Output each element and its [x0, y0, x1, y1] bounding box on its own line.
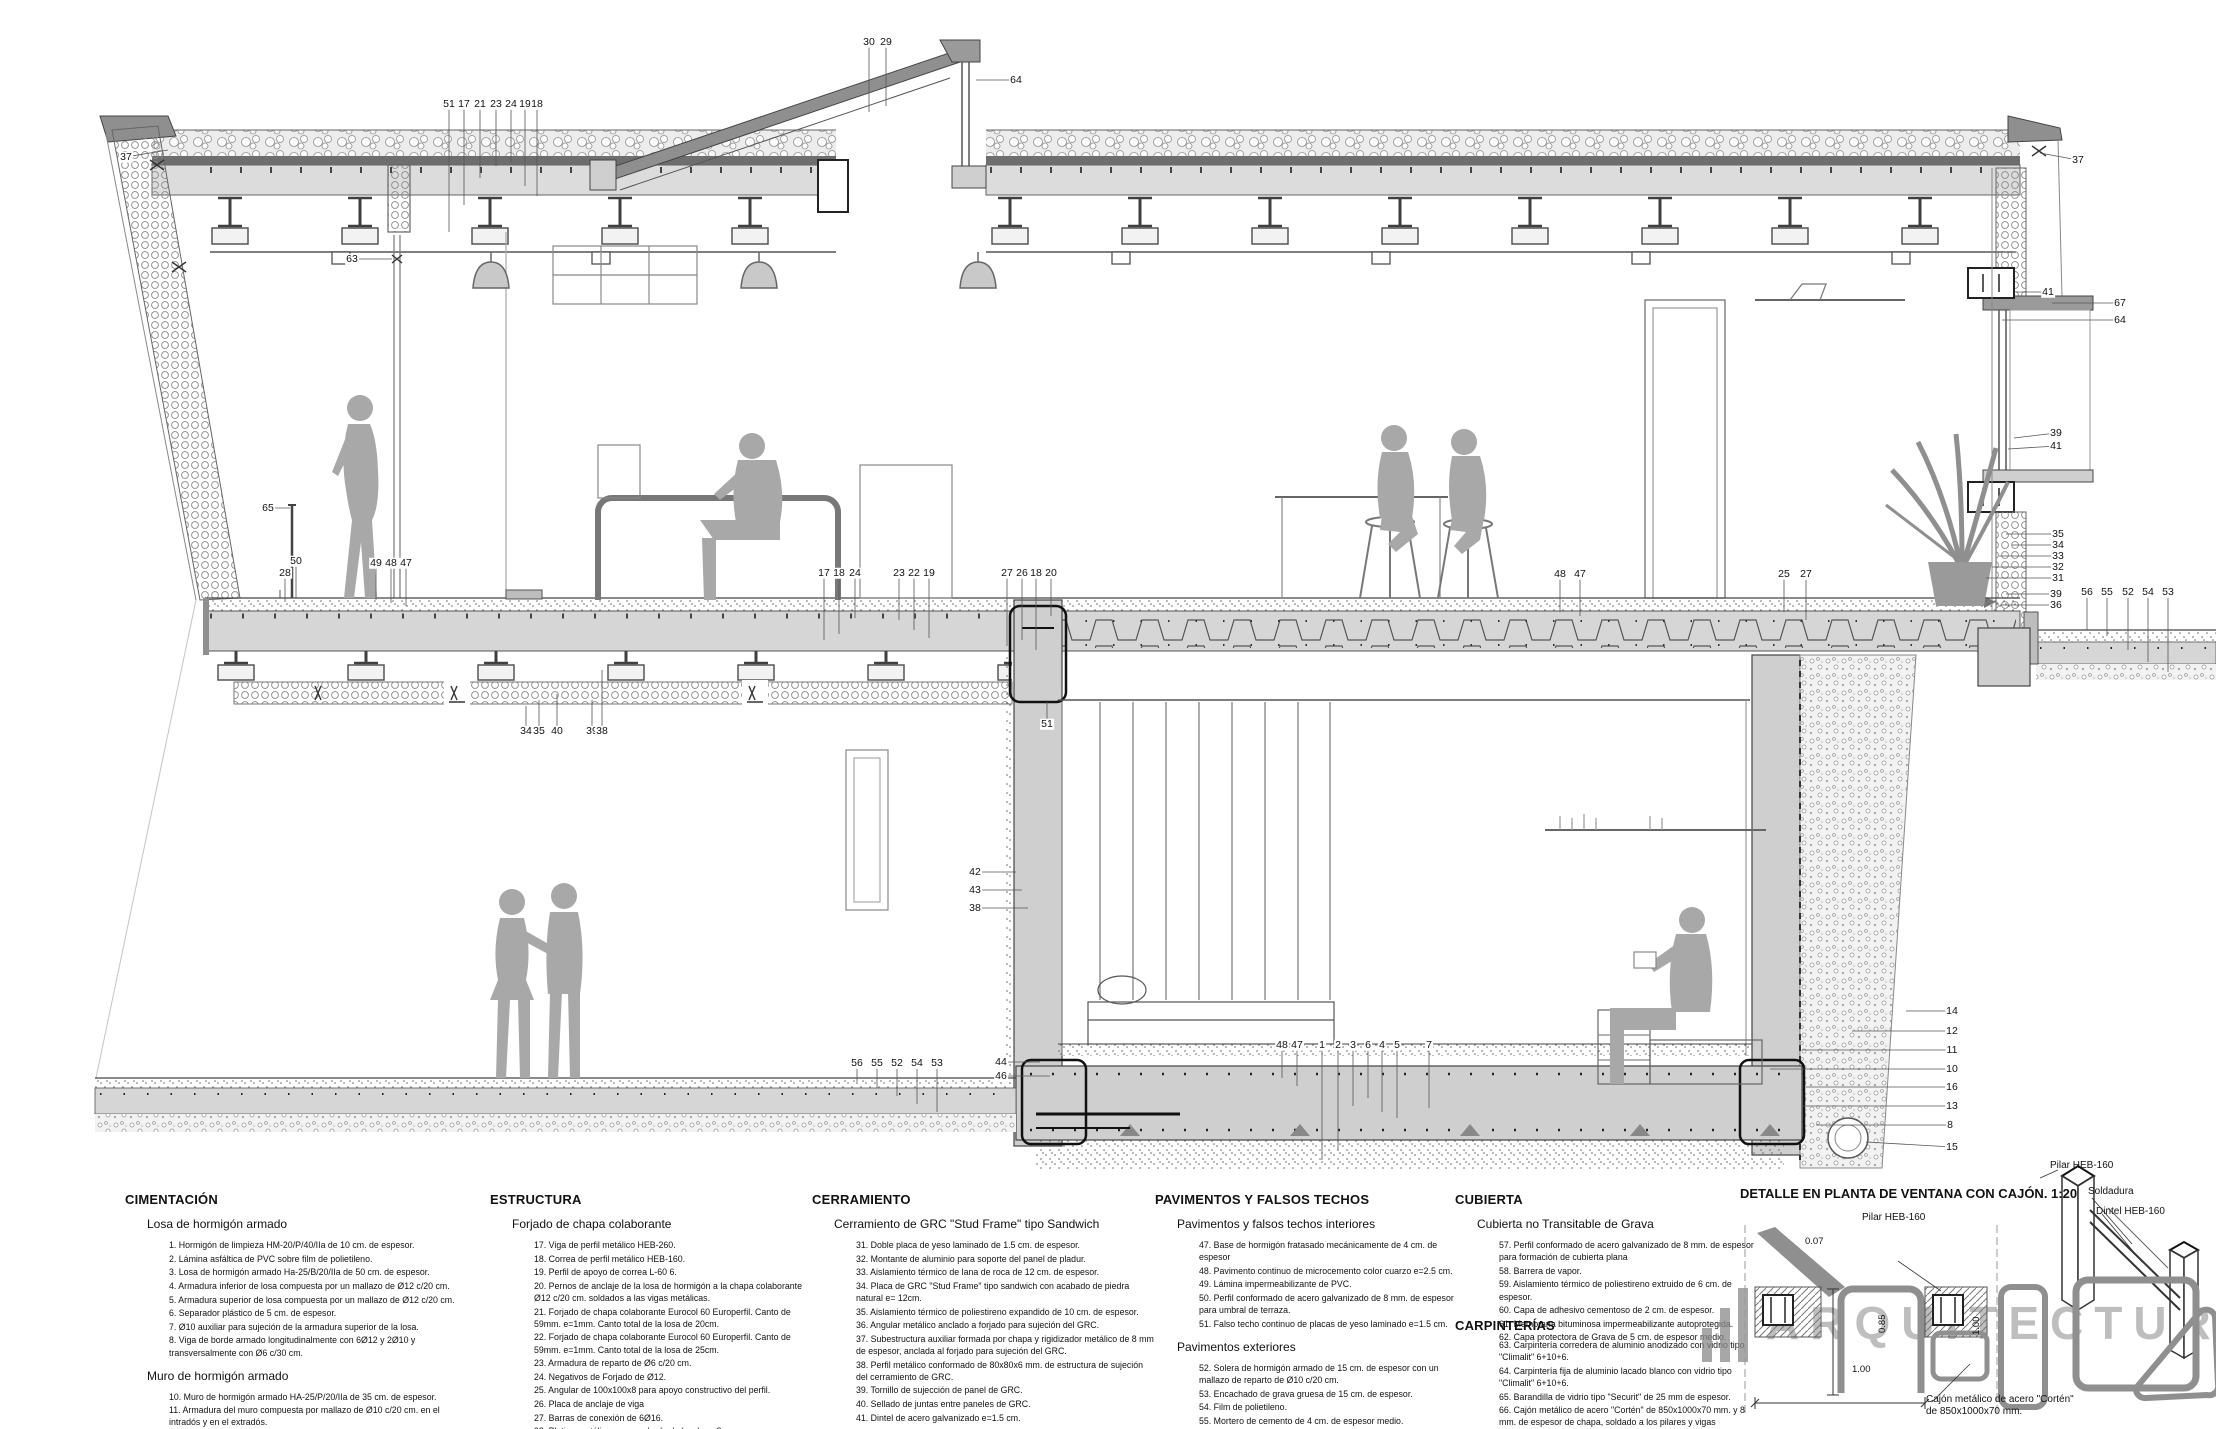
- callout-number: 13: [1945, 1101, 1959, 1112]
- callout-number: 65: [261, 503, 275, 514]
- plan-detail: [1745, 1225, 2045, 1415]
- callout-number: 32: [2051, 562, 2065, 573]
- callout-number: 23: [892, 568, 906, 579]
- callout-number: 48: [1275, 1040, 1289, 1051]
- callout-number: 35: [532, 726, 546, 737]
- legend-subtitle: Losa de hormigón armado: [147, 1217, 470, 1231]
- callout-number: 5: [1393, 1040, 1401, 1051]
- callout-number: 1: [1318, 1040, 1326, 1051]
- legend-item: 34. Placa de GRC "Stud Frame" tipo sandw…: [856, 1280, 1157, 1304]
- callout-number: 17: [817, 568, 831, 579]
- figure-bar-pair: [1377, 425, 1486, 554]
- callout-number: 20: [1044, 568, 1058, 579]
- legend-title: ESTRUCTURA: [490, 1192, 805, 1207]
- callout-number: 47: [1573, 569, 1587, 580]
- axon-detail: [1932, 1166, 2216, 1402]
- callout-number: 11: [1946, 1045, 1959, 1056]
- legend-item: 20. Pernos de anclaje de la losa de horm…: [534, 1280, 805, 1304]
- legend-item: 54. Film de polietileno.: [1199, 1401, 1455, 1413]
- legend-item: 22. Forjado de chapa colaborante Eurocol…: [534, 1331, 805, 1355]
- detail-label-cajon-line1: Cajón metálico de acero "Cortén": [1926, 1394, 2074, 1405]
- legend-item: 36. Angular metálico anclado a forjado p…: [856, 1319, 1157, 1331]
- callout-number: 14: [1945, 1006, 1959, 1017]
- callout-number: 15: [1945, 1142, 1959, 1153]
- legend-section: Pavimentos exteriores52. Solera de hormi…: [1155, 1340, 1455, 1429]
- legend-item: 66. Cajón metálico de acero "Cortén" de …: [1499, 1404, 1755, 1429]
- legend-item: 31. Doble placa de yeso laminado de 1.5 …: [856, 1239, 1157, 1251]
- callout-number: 37: [2071, 155, 2085, 166]
- legend-column-estructura: ESTRUCTURAForjado de chapa colaborante17…: [490, 1192, 805, 1429]
- callout-number: 64: [2113, 315, 2127, 326]
- legend-item: 7. Ø10 auxiliar para sujeción de la arma…: [169, 1321, 470, 1333]
- legend-item: 8. Viga de borde armado longitudinalment…: [169, 1334, 470, 1358]
- legend-column-cimentacion: CIMENTACIÓNLosa de hormigón armado1. Hor…: [125, 1192, 470, 1429]
- callout-number: 28: [278, 568, 292, 579]
- callout-number: 26: [1015, 568, 1029, 579]
- legend-item: 28. Pletina metálica para acabado de bor…: [534, 1425, 805, 1429]
- dim-007: 0.07: [1805, 1236, 1824, 1247]
- legend-item: 51. Falso techo continuo de placas de ye…: [1199, 1318, 1455, 1330]
- callout-number: 54: [910, 1058, 924, 1069]
- legend-section: Losa de hormigón armado1. Hormigón de li…: [125, 1217, 470, 1359]
- callout-number: 51: [1040, 719, 1054, 730]
- legend-title: CERRAMIENTO: [812, 1192, 1157, 1207]
- callout-number: 53: [2161, 587, 2175, 598]
- legend-item: 4. Armadura inferior de losa compuesta p…: [169, 1280, 470, 1292]
- legend-item: 25. Angular de 100x100x8 para apoyo cons…: [534, 1384, 805, 1396]
- callout-number: 64: [1009, 75, 1023, 86]
- callout-number: 18: [1029, 568, 1043, 579]
- callout-number: 2: [1334, 1040, 1342, 1051]
- legend-item: 33. Aislamiento térmico de lana de roca …: [856, 1266, 1157, 1278]
- callout-number: 29: [879, 37, 893, 48]
- callout-number: 41: [2041, 287, 2055, 298]
- callout-number: 55: [2100, 587, 2114, 598]
- callout-number: 30: [862, 37, 876, 48]
- callout-number: 56: [850, 1058, 864, 1069]
- legend-item: 5. Armadura superior de losa compuesta p…: [169, 1294, 470, 1306]
- callout-number: 4: [1378, 1040, 1386, 1051]
- callout-number: 31: [2051, 573, 2065, 584]
- callout-number: 52: [890, 1058, 904, 1069]
- detail-label-pilar-plan: Pilar HEB-160: [1862, 1212, 1925, 1223]
- callout-number: 18: [530, 99, 544, 110]
- legend-item: 39. Tornillo de sujección de panel de GR…: [856, 1384, 1157, 1396]
- legend-item: 40. Sellado de juntas entre paneles de G…: [856, 1398, 1157, 1410]
- detail-label-soldadura: Soldadura: [2088, 1186, 2134, 1197]
- legend-section: Forjado de chapa colaborante17. Viga de …: [490, 1217, 805, 1429]
- callout-number: 40: [550, 726, 564, 737]
- callout-number: 56: [2080, 587, 2094, 598]
- mid-slab: [203, 505, 2020, 706]
- callout-number: 43: [968, 885, 982, 896]
- detail-label-pilar-axon: Pilar HEB-160: [2050, 1160, 2113, 1171]
- legend-title: CUBIERTA: [1455, 1192, 1755, 1207]
- legend-section: Cerramiento de GRC "Stud Frame" tipo San…: [812, 1217, 1157, 1424]
- legend-item: 49. Lámina impermeabilizante de PVC.: [1199, 1278, 1455, 1290]
- legend-subtitle: Cerramiento de GRC "Stud Frame" tipo San…: [834, 1217, 1157, 1231]
- legend-item: 11. Armadura del muro compuesta por mall…: [169, 1404, 470, 1428]
- legend-subtitle: Pavimentos exteriores: [1177, 1340, 1455, 1354]
- callout-number: 44: [994, 1057, 1008, 1068]
- legend-column-cerramiento: CERRAMIENTOCerramiento de GRC "Stud Fram…: [812, 1192, 1157, 1429]
- callout-number: 27: [1000, 568, 1014, 579]
- callout-number: 10: [1945, 1064, 1959, 1075]
- legend-item: 35. Aislamiento térmico de poliestireno …: [856, 1306, 1157, 1318]
- figure-couple: [490, 883, 583, 1078]
- callout-number: 6: [1364, 1040, 1372, 1051]
- legend-item: 21. Forjado de chapa colaborante Eurocol…: [534, 1306, 805, 1330]
- legend-item: 50. Perfil conformado de acero galvaniza…: [1199, 1292, 1455, 1316]
- callout-number: 22: [907, 568, 921, 579]
- callout-number: 25: [1777, 569, 1791, 580]
- callout-number: 52: [2121, 587, 2135, 598]
- callout-number: 53: [930, 1058, 944, 1069]
- legend-subtitle: Muro de hormigón armado: [147, 1369, 470, 1383]
- legend-item: 23. Armadura de reparto de Ø6 c/20 cm.: [534, 1357, 805, 1369]
- legend-item: 3. Losa de hormigón armado Ha-25/B/20/II…: [169, 1266, 470, 1278]
- legend-item: 47. Base de hormigón fratasado mecánicam…: [1199, 1239, 1455, 1263]
- dim-100b: 1.00: [1971, 1317, 1982, 1336]
- callout-number: 49: [369, 558, 383, 569]
- legend-item: 52. Solera de hormigón armado de 15 cm. …: [1199, 1362, 1455, 1386]
- callout-number: 3: [1349, 1040, 1357, 1051]
- legend-item: 10. Muro de hormigón armado HA-25/P/20/I…: [169, 1391, 470, 1403]
- callout-number: 38: [968, 903, 982, 914]
- sheet: 3751172123241918302964376365285049484717…: [0, 0, 2216, 1429]
- legend-item: 2. Lámina asfáltica de PVC sobre film de…: [169, 1253, 470, 1265]
- legend-item: 57. Perfil conformado de acero galvaniza…: [1499, 1239, 1755, 1263]
- legend-item: 48. Pavimento continuo de microcemento c…: [1199, 1265, 1455, 1277]
- figure-reading-man: [1610, 907, 1712, 1084]
- legend-item: 41. Dintel de acero galvanizado e=1.5 cm…: [856, 1412, 1157, 1424]
- callout-number: 34: [519, 726, 533, 737]
- callout-number: 63: [345, 254, 359, 265]
- section-drawing: [0, 0, 2216, 1180]
- legend-item: 6. Separador plástico de 5 cm. de espeso…: [169, 1307, 470, 1319]
- callout-number: 23: [489, 99, 503, 110]
- callout-number: 17: [457, 99, 471, 110]
- callout-number: 24: [504, 99, 518, 110]
- legend-item: 27. Barras de conexión de 6Ø16.: [534, 1412, 805, 1424]
- legend-title: PAVIMENTOS Y FALSOS TECHOS: [1155, 1192, 1455, 1207]
- callout-number: 37: [119, 152, 133, 163]
- legend-item: 55. Mortero de cemento de 4 cm. de espes…: [1199, 1415, 1455, 1427]
- plant: [1886, 434, 2008, 606]
- callout-number: 67: [2113, 298, 2127, 309]
- legend-item: 32. Montante de aluminio para soporte de…: [856, 1253, 1157, 1265]
- legend-item: 65. Barandilla de vidrio tipo "Securit" …: [1499, 1391, 1755, 1403]
- callout-number: 21: [473, 99, 487, 110]
- callout-number: 55: [870, 1058, 884, 1069]
- legend-item: 26. Placa de anclaje de viga: [534, 1398, 805, 1410]
- callout-number: 19: [922, 568, 936, 579]
- callout-number: 47: [1290, 1040, 1304, 1051]
- legend-item: 53. Encachado de grava gruesa de 15 cm. …: [1199, 1388, 1455, 1400]
- legend-subtitle: Cubierta no Transitable de Grava: [1477, 1217, 1755, 1231]
- callout-number: 47: [399, 558, 413, 569]
- legend-item: 38. Perfil metálico conformado de 80x80x…: [856, 1359, 1157, 1383]
- callout-number: 48: [1553, 569, 1567, 580]
- callout-number: 34: [2051, 540, 2065, 551]
- legend-section: Muro de hormigón armado10. Muro de hormi…: [125, 1369, 470, 1429]
- pendant-lamp-icon: [473, 252, 996, 288]
- callout-number: 39: [2049, 589, 2063, 600]
- callout-number: 35: [2051, 529, 2065, 540]
- callout-number: 16: [1945, 1082, 1959, 1093]
- basement: [1006, 600, 1916, 1170]
- callout-number: 42: [968, 867, 982, 878]
- callout-number: 50: [289, 556, 303, 567]
- legend-subtitle: Forjado de chapa colaborante: [512, 1217, 805, 1231]
- callout-number: 41: [2049, 441, 2063, 452]
- legend-item: 64. Carpintería fija de aluminio lacado …: [1499, 1365, 1755, 1389]
- callout-number: 18: [832, 568, 846, 579]
- detail-label-cajon-line2: de 850x1000x70 mm.: [1926, 1406, 2022, 1417]
- legend-item: 1. Hormigón de limpieza HM-20/P/40/IIa d…: [169, 1239, 470, 1251]
- callout-number: 54: [2141, 587, 2155, 598]
- callout-number: 36: [2049, 600, 2063, 611]
- callout-number: 39: [2049, 428, 2063, 439]
- callout-number: 33: [2051, 551, 2065, 562]
- callout-number: 38: [595, 726, 609, 737]
- legend-item: 18. Correa de perfil metálico HEB-160.: [534, 1253, 805, 1265]
- legend-column-pavimentos: PAVIMENTOS Y FALSOS TECHOSPavimentos y f…: [1155, 1192, 1455, 1429]
- dim-085: 0.85: [1877, 1315, 1888, 1334]
- callout-number: 48: [384, 558, 398, 569]
- legend-item: 37. Subestructura auxiliar formada por c…: [856, 1333, 1157, 1357]
- legend-item: 17. Viga de perfil metálico HEB-260.: [534, 1239, 805, 1251]
- callout-number: 7: [1425, 1040, 1433, 1051]
- legend-item: 24. Negativos de Forjado de Ø12.: [534, 1371, 805, 1383]
- callout-number: 24: [848, 568, 862, 579]
- legend-item: 19. Perfil de apoyo de correa L-60 6.: [534, 1266, 805, 1278]
- callout-number: 51: [442, 99, 456, 110]
- legend-section: Pavimentos y falsos techos interiores47.…: [1155, 1217, 1455, 1330]
- callout-number: 12: [1945, 1026, 1959, 1037]
- callout-number: 27: [1799, 569, 1813, 580]
- detail-label-dintel: Dintel HEB-160: [2096, 1206, 2165, 1217]
- legend-subtitle: Pavimentos y falsos techos interiores: [1177, 1217, 1455, 1231]
- callout-number: 46: [994, 1071, 1008, 1082]
- callout-number: 8: [1946, 1120, 1954, 1131]
- detail-title: DETALLE EN PLANTA DE VENTANA CON CAJÓN. …: [1740, 1186, 2077, 1201]
- figure-sitting-man: [700, 433, 782, 600]
- legend-title: CIMENTACIÓN: [125, 1192, 470, 1207]
- dim-100a: 1.00: [1852, 1364, 1871, 1375]
